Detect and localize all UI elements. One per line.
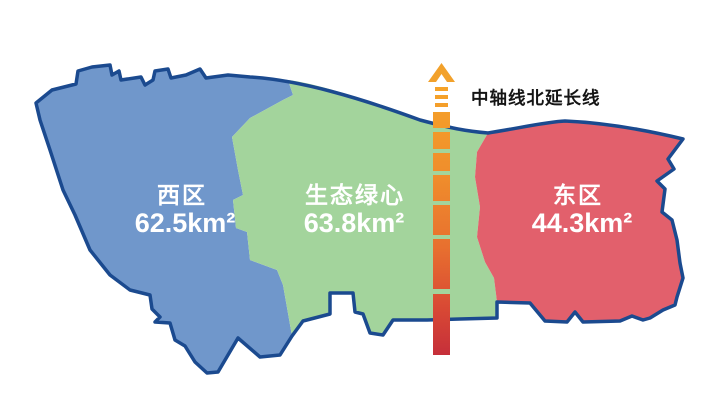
district-map-infographic: 中轴线北延长线 西区 62.5km² 生态绿心 63.8km² 东区 44.3k… [0,0,718,407]
region-west-area: 62.5km² [135,208,236,238]
region-green-heart-area: 63.8km² [304,208,405,238]
axis-dashed-line [433,87,450,355]
region-green-heart-name: 生态绿心 [305,182,405,208]
axis-label: 中轴线北延长线 [471,88,601,108]
region-west-name: 西区 [157,182,207,208]
region-east-name: 东区 [553,182,603,208]
region-east-area: 44.3km² [532,208,633,238]
axis-arrow-up-icon [428,63,455,82]
map-canvas: 中轴线北延长线 西区 62.5km² 生态绿心 63.8km² 东区 44.3k… [0,0,718,407]
region-green-heart-labels: 生态绿心 63.8km² [304,182,405,238]
